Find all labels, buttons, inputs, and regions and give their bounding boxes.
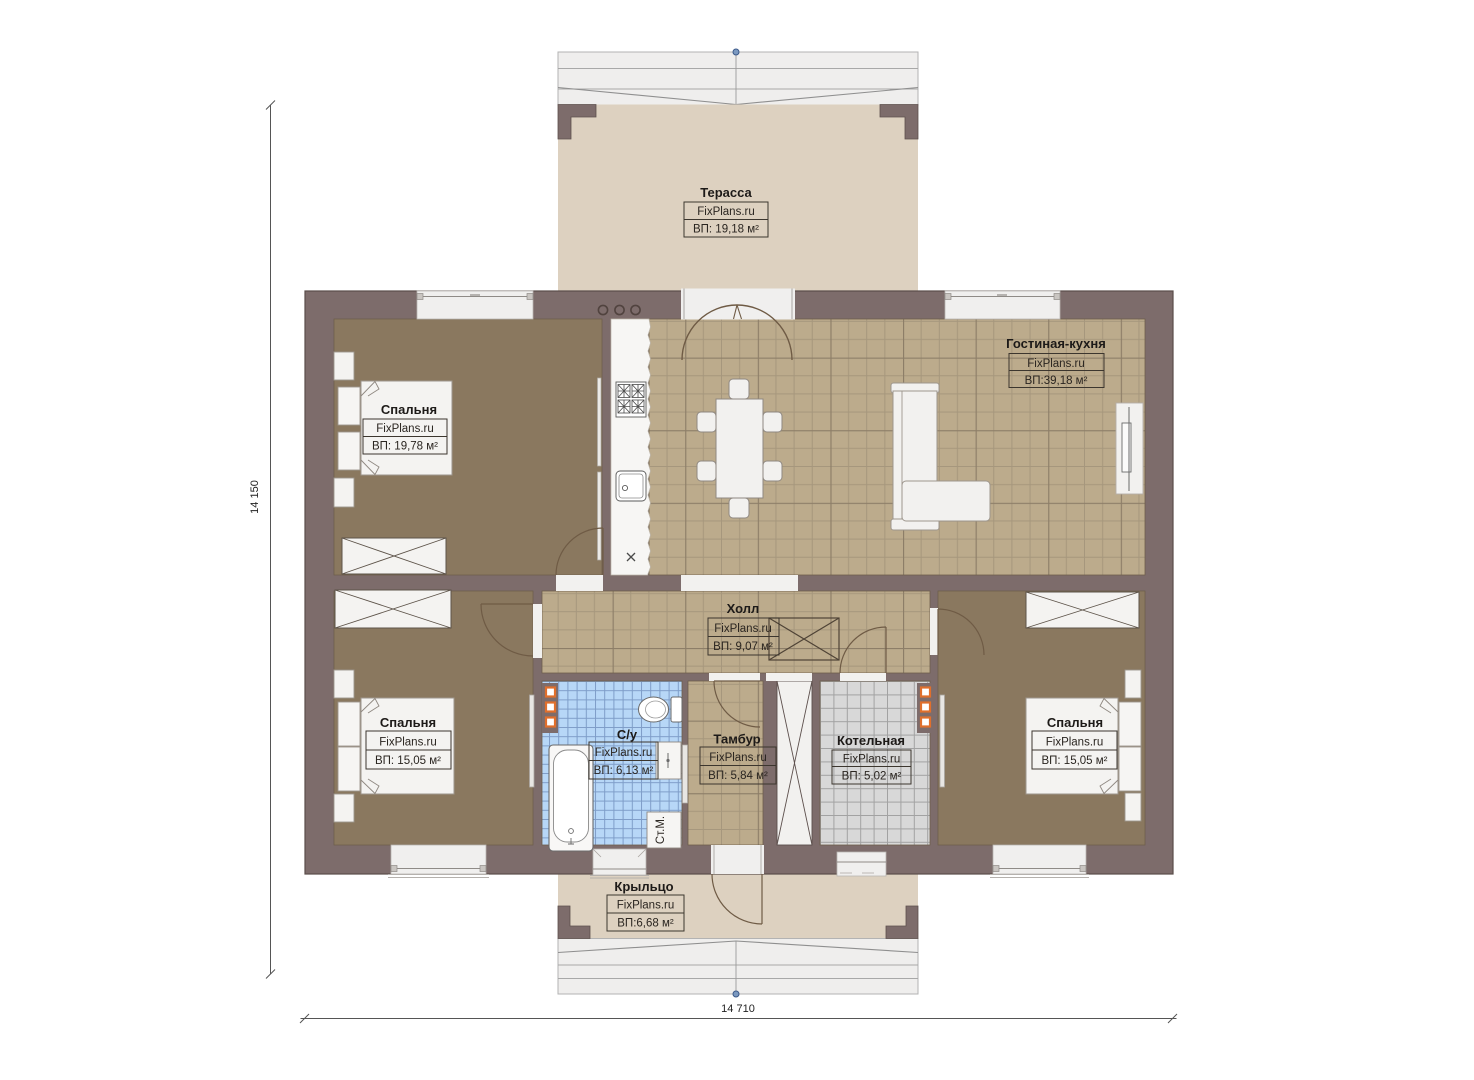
svg-text:ВП: 15,05 м²: ВП: 15,05 м²	[1041, 755, 1107, 767]
svg-text:ВП:6,68 м²: ВП:6,68 м²	[617, 918, 674, 930]
svg-text:FixPlans.ru: FixPlans.ru	[697, 206, 755, 218]
svg-text:FixPlans.ru: FixPlans.ru	[709, 752, 767, 764]
svg-text:Холл: Холл	[727, 601, 760, 616]
svg-text:Спальня: Спальня	[1047, 715, 1103, 730]
svg-text:FixPlans.ru: FixPlans.ru	[1046, 737, 1104, 749]
svg-text:ВП: 5,02 м²: ВП: 5,02 м²	[842, 771, 902, 783]
svg-text:ВП: 6,13 м²: ВП: 6,13 м²	[594, 765, 654, 777]
svg-text:FixPlans.ru: FixPlans.ru	[595, 747, 653, 759]
svg-text:FixPlans.ru: FixPlans.ru	[714, 623, 772, 635]
svg-text:14 150: 14 150	[249, 480, 261, 514]
svg-text:ВП: 19,18 м²: ВП: 19,18 м²	[693, 224, 759, 236]
svg-text:FixPlans.ru: FixPlans.ru	[617, 900, 675, 912]
svg-text:Терасса: Терасса	[700, 185, 752, 200]
svg-text:ВП:39,18 м²: ВП:39,18 м²	[1025, 375, 1088, 387]
svg-text:Ст.М.: Ст.М.	[655, 816, 667, 844]
svg-text:ВП: 5,84 м²: ВП: 5,84 м²	[708, 770, 768, 782]
svg-text:Котельная: Котельная	[837, 733, 905, 748]
svg-text:ВП: 19,78 м²: ВП: 19,78 м²	[372, 441, 438, 453]
svg-text:С/у: С/у	[617, 727, 638, 742]
svg-text:Тамбур: Тамбур	[713, 732, 760, 747]
svg-text:14 710: 14 710	[721, 1003, 755, 1015]
svg-text:FixPlans.ru: FixPlans.ru	[1027, 358, 1085, 370]
svg-text:ВП: 9,07 м²: ВП: 9,07 м²	[713, 641, 773, 653]
svg-text:Крыльцо: Крыльцо	[614, 879, 673, 894]
svg-text:FixPlans.ru: FixPlans.ru	[379, 737, 437, 749]
svg-text:FixPlans.ru: FixPlans.ru	[376, 423, 434, 435]
svg-text:Спальня: Спальня	[381, 402, 437, 417]
svg-text:Гостиная-кухня: Гостиная-кухня	[1006, 336, 1106, 351]
svg-text:FixPlans.ru: FixPlans.ru	[843, 754, 901, 766]
svg-text:ВП: 15,05 м²: ВП: 15,05 м²	[375, 755, 441, 767]
svg-text:Спальня: Спальня	[380, 715, 436, 730]
